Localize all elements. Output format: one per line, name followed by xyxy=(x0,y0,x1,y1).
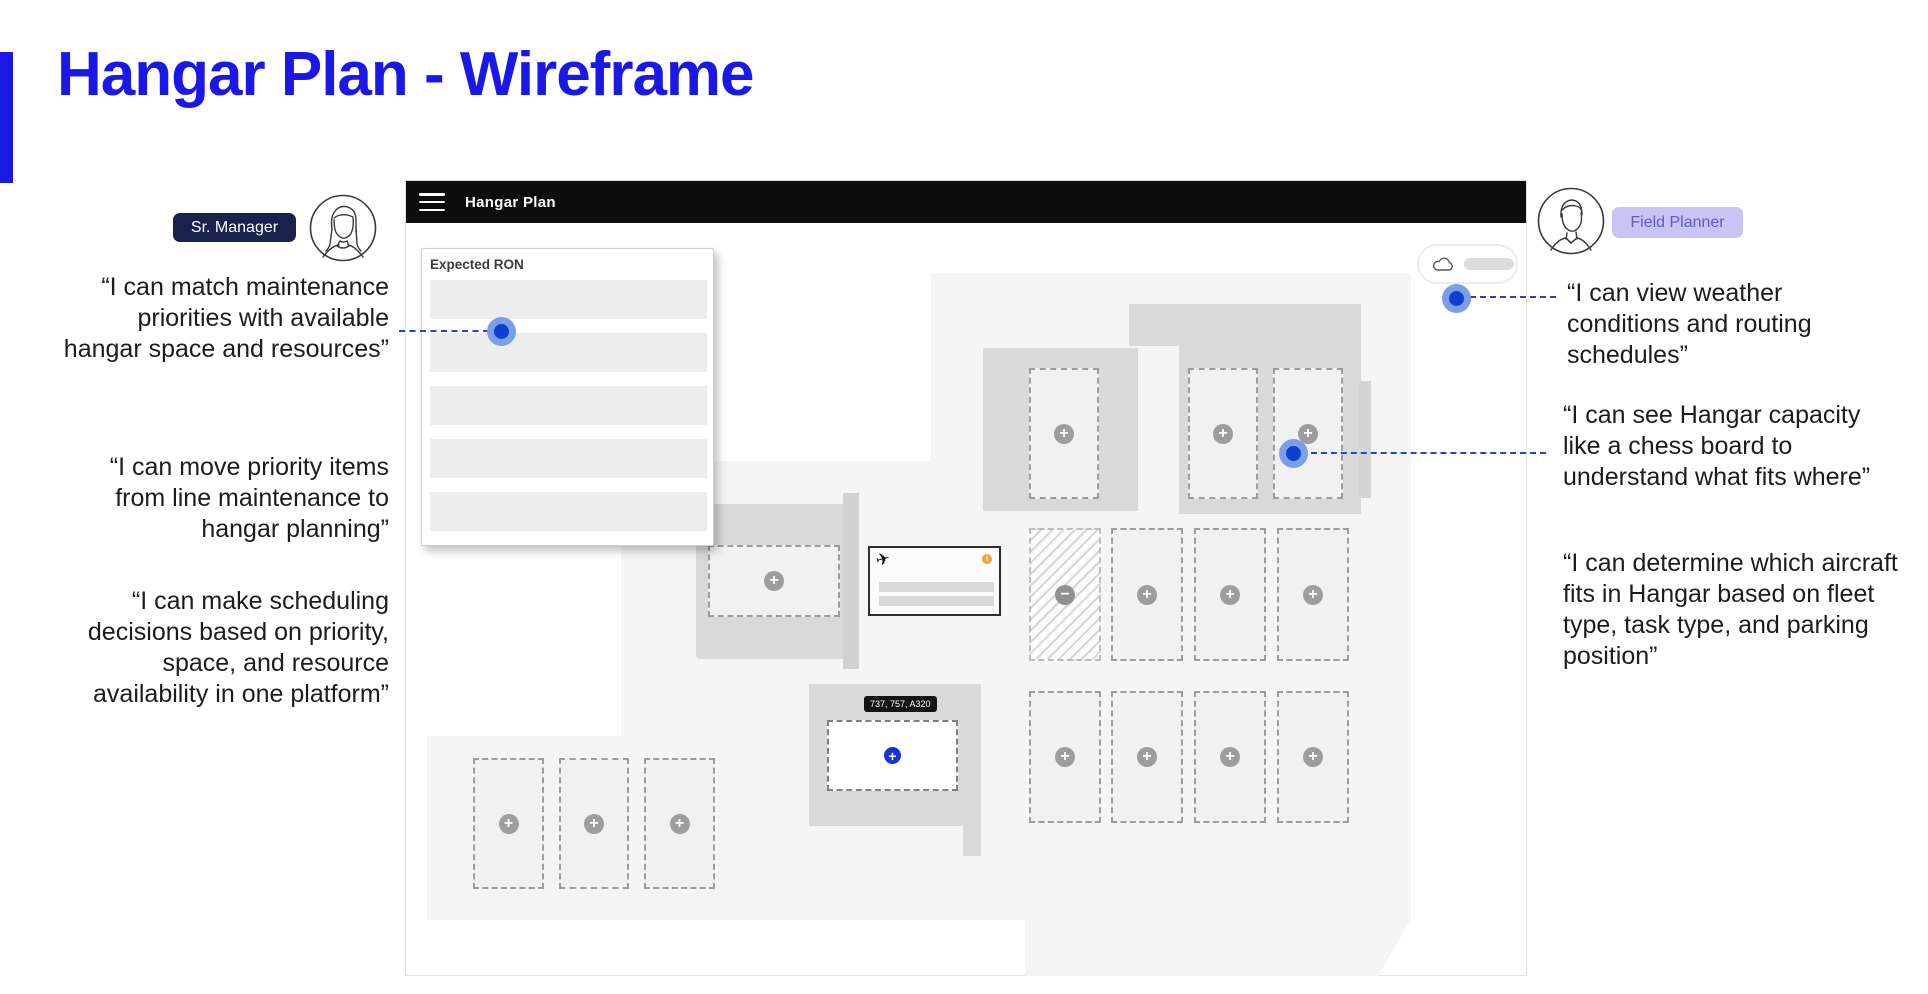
field-planner-avatar xyxy=(1537,187,1605,255)
weather-placeholder-bar xyxy=(1464,258,1514,270)
add-icon: + xyxy=(1298,424,1318,444)
quote-aircraft-fit: “I can determine which aircraft fits in … xyxy=(1563,548,1915,672)
annotation-dot-weather xyxy=(1449,291,1464,306)
parking-spot[interactable]: + xyxy=(559,758,629,889)
annotation-dot-ron-panel xyxy=(494,324,509,339)
placeholder-text-line xyxy=(879,582,994,592)
parking-spot[interactable]: + xyxy=(1194,691,1266,823)
add-icon: + xyxy=(1220,747,1240,767)
add-icon: + xyxy=(1137,585,1157,605)
parking-spot[interactable]: + xyxy=(1029,691,1101,823)
quote-scheduling-decisions: “I can make scheduling decisions based o… xyxy=(44,586,389,710)
connector-line-capacity xyxy=(1311,452,1546,454)
placeholder-text-line xyxy=(879,596,994,606)
ron-list-item[interactable] xyxy=(430,439,707,478)
add-icon: + xyxy=(499,814,519,834)
persona-badge-label: Sr. Manager xyxy=(191,219,278,237)
expected-ron-title: Expected RON xyxy=(430,257,524,272)
parking-spot[interactable]: + xyxy=(1111,691,1183,823)
persona-badge-label: Field Planner xyxy=(1630,214,1724,232)
connector-line-weather xyxy=(1470,296,1556,298)
parking-spot[interactable]: + xyxy=(1111,528,1183,661)
add-icon: + xyxy=(1054,424,1074,444)
add-icon: + xyxy=(1303,585,1323,605)
add-icon: + xyxy=(1055,747,1075,767)
annotation-dot-capacity xyxy=(1286,446,1301,461)
ron-list-item[interactable] xyxy=(430,333,707,372)
expected-ron-panel: Expected RON xyxy=(421,248,714,546)
sr-manager-avatar xyxy=(309,194,377,262)
add-icon-blue: + xyxy=(884,747,901,764)
hangar-plan-window: + + + − + + + + + + + + + + + + ✈ i xyxy=(405,180,1527,976)
parking-spot[interactable]: + xyxy=(1188,368,1258,499)
man-avatar-icon xyxy=(1537,187,1605,255)
hangar-building xyxy=(1359,381,1371,498)
quote-match-priorities: “I can match maintenance priorities with… xyxy=(59,272,389,365)
hangar-building xyxy=(1129,304,1361,346)
remove-icon: − xyxy=(1055,585,1075,605)
weather-widget[interactable] xyxy=(1417,244,1518,284)
fleet-tooltip: 737, 757, A320 xyxy=(864,696,937,712)
connector-line-left xyxy=(399,330,489,332)
app-header: Hangar Plan xyxy=(406,181,1526,223)
cloud-icon xyxy=(1431,254,1457,274)
app-title: Hangar Plan xyxy=(465,194,556,211)
parking-spot[interactable]: + xyxy=(1273,368,1343,499)
menu-icon[interactable] xyxy=(419,193,445,211)
woman-avatar-icon xyxy=(309,194,377,262)
plane-icon: ✈ xyxy=(874,548,893,571)
persona-badge-sr-manager: Sr. Manager xyxy=(173,213,296,242)
ron-list-item[interactable] xyxy=(430,492,707,531)
hangar-building xyxy=(843,493,859,669)
add-icon: + xyxy=(1220,585,1240,605)
parking-spot[interactable]: + xyxy=(1029,368,1099,499)
add-icon: + xyxy=(1303,747,1323,767)
add-icon: + xyxy=(584,814,604,834)
parking-spot[interactable]: + xyxy=(1194,528,1266,661)
hangar-building xyxy=(963,826,981,856)
parking-spot[interactable]: + xyxy=(1277,528,1349,661)
persona-badge-field-planner: Field Planner xyxy=(1612,207,1743,238)
aircraft-card[interactable]: ✈ i xyxy=(868,546,1001,616)
add-icon: + xyxy=(670,814,690,834)
add-icon: + xyxy=(764,571,784,591)
quote-move-priority-items: “I can move priority items from line mai… xyxy=(69,452,389,545)
page-title: Hangar Plan - Wireframe xyxy=(57,40,754,110)
blocked-parking-spot[interactable]: − xyxy=(1029,528,1101,661)
add-icon: + xyxy=(1137,747,1157,767)
quote-view-weather: “I can view weather conditions and routi… xyxy=(1567,278,1837,371)
title-accent-bar xyxy=(0,52,13,183)
slide: Hangar Plan - Wireframe Sr. Manager “I c… xyxy=(0,0,1928,994)
parking-spot[interactable]: + xyxy=(1277,691,1349,823)
add-icon: + xyxy=(1213,424,1233,444)
quote-hangar-capacity: “I can see Hangar capacity like a chess … xyxy=(1563,400,1903,493)
ron-list-item[interactable] xyxy=(430,280,707,319)
parking-spot[interactable]: + xyxy=(644,758,715,889)
parking-spot[interactable]: + xyxy=(708,545,840,617)
info-icon: i xyxy=(982,554,992,564)
parking-spot[interactable]: + xyxy=(473,758,544,889)
selected-parking-spot[interactable]: + xyxy=(827,720,958,791)
ron-list-item[interactable] xyxy=(430,386,707,425)
